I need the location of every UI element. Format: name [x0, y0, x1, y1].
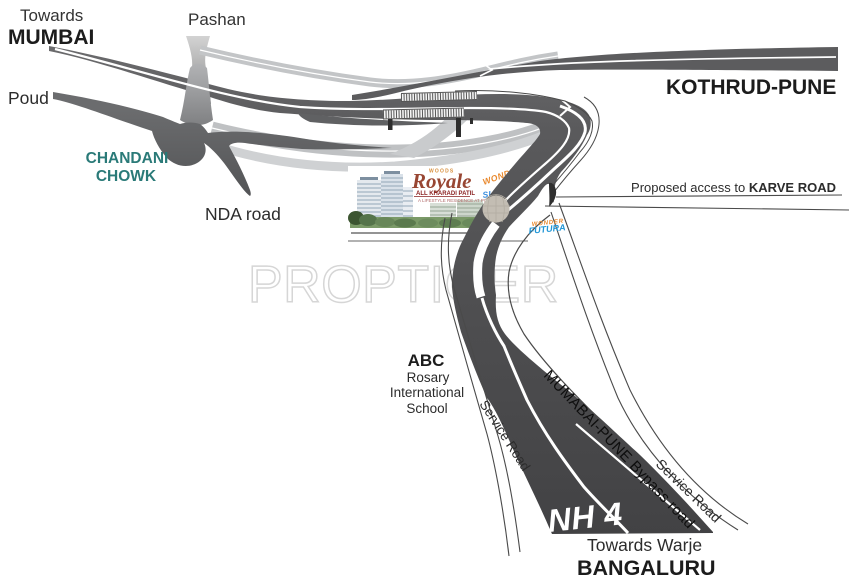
svg-text:Proposed access to KARVE ROAD: Proposed access to KARVE ROAD — [631, 180, 836, 195]
svg-text:PROPTIGER: PROPTIGER — [248, 256, 559, 314]
svg-text:Pashan: Pashan — [188, 10, 246, 29]
svg-text:Towards Warje: Towards Warje — [587, 535, 702, 555]
svg-text:School: School — [406, 401, 447, 416]
svg-text:KOTHRUD-PUNE: KOTHRUD-PUNE — [666, 76, 836, 99]
svg-text:Rosary: Rosary — [407, 370, 450, 385]
svg-text:MUMBAI: MUMBAI — [8, 26, 94, 49]
svg-text:Poud: Poud — [8, 88, 49, 108]
svg-text:NDA road: NDA road — [205, 204, 281, 224]
svg-text:BANGALURU: BANGALURU — [577, 556, 716, 576]
svg-text:ABC: ABC — [408, 351, 445, 370]
svg-text:CHANDANI: CHANDANI — [86, 150, 169, 167]
svg-text:Royale: Royale — [411, 169, 471, 193]
svg-text:International: International — [390, 385, 464, 400]
svg-text:A LIFESTYLE RESIDENCE AT PUNE: A LIFESTYLE RESIDENCE AT PUNE — [418, 198, 493, 203]
svg-text:Towards: Towards — [20, 6, 83, 25]
svg-text:CHOWK: CHOWK — [96, 168, 157, 185]
